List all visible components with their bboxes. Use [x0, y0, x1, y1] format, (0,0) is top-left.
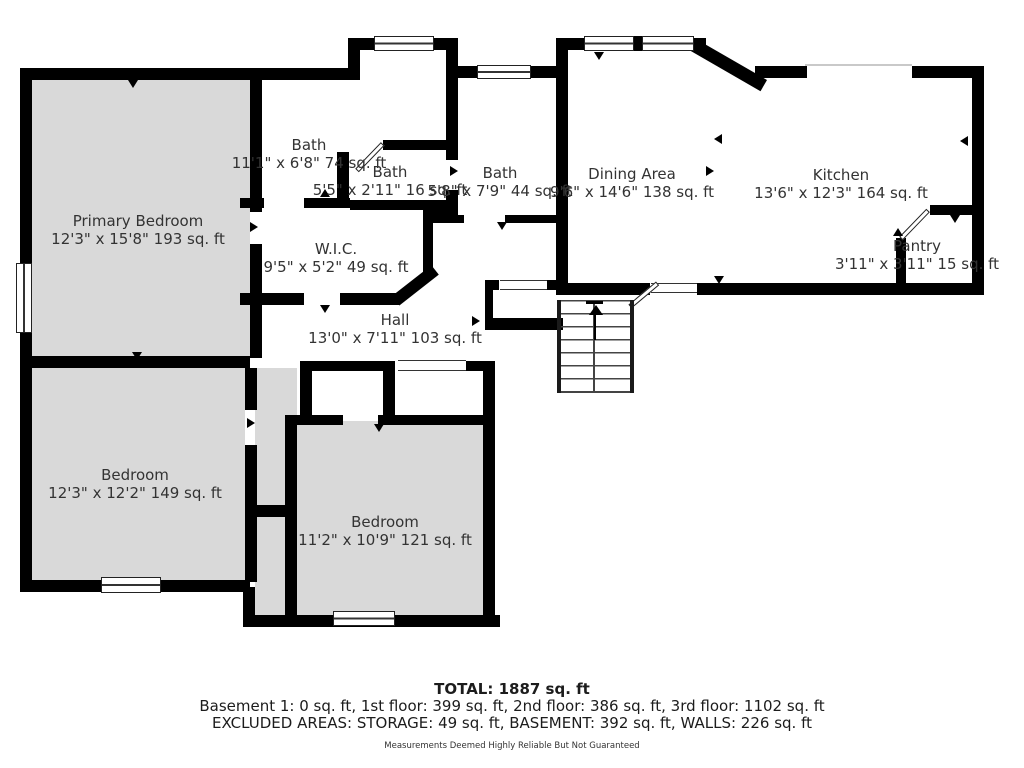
- window: [584, 36, 634, 51]
- wall: [245, 368, 257, 410]
- wall: [930, 205, 984, 215]
- room-name: Bath: [232, 136, 387, 154]
- opening: [805, 64, 912, 69]
- room-dims: 12'3" x 15'8" 193 sq. ft: [51, 230, 225, 248]
- wall: [300, 361, 312, 421]
- wall: [304, 198, 350, 208]
- room-name: Bedroom: [48, 466, 222, 484]
- wall: [340, 293, 400, 305]
- wall: [483, 361, 495, 627]
- window: [642, 36, 694, 51]
- wall: [697, 283, 984, 295]
- room-name: Bedroom: [298, 513, 472, 531]
- room-name: W.I.C.: [263, 240, 408, 258]
- window: [477, 65, 531, 79]
- summary-footer: TOTAL: 1887 sq. ft Basement 1: 0 sq. ft,…: [0, 681, 1024, 751]
- wall: [485, 318, 563, 330]
- door-marker: [250, 222, 258, 232]
- wall: [383, 140, 458, 150]
- wall: [505, 215, 567, 223]
- disclaimer: Measurements Deemed Highly Reliable But …: [0, 741, 1024, 751]
- wall: [250, 198, 262, 212]
- door-marker: [950, 215, 960, 223]
- door-marker: [374, 424, 384, 432]
- stair-rail: [630, 300, 634, 393]
- wall: [285, 421, 297, 617]
- door-marker: [22, 214, 30, 224]
- room-dims: 11'2" x 10'9" 121 sq. ft: [298, 531, 472, 549]
- room-name: Kitchen: [754, 166, 928, 184]
- wall: [383, 361, 395, 421]
- room-label-bedroom-bottom: Bedroom 11'2" x 10'9" 121 sq. ft: [298, 513, 472, 549]
- wall: [300, 361, 395, 371]
- door-leaf: [899, 209, 930, 241]
- wall: [466, 361, 495, 371]
- room-label-pantry: Pantry 3'11" x 3'11" 15 sq. ft: [835, 237, 999, 273]
- window: [398, 360, 466, 371]
- room-label-primary-bedroom: Primary Bedroom 12'3" x 15'8" 193 sq. ft: [51, 212, 225, 248]
- room-label-dining: Dining Area 9'6" x 14'6" 138 sq. ft: [550, 165, 714, 201]
- wall: [446, 215, 464, 223]
- room-name: Hall: [308, 311, 482, 329]
- room-label-wic: W.I.C. 9'5" x 5'2" 49 sq. ft: [263, 240, 408, 276]
- wall: [458, 66, 478, 78]
- wall: [563, 283, 650, 295]
- door-marker: [594, 52, 604, 60]
- room-label-hall: Hall 13'0" x 7'11" 103 sq. ft: [308, 311, 482, 347]
- window: [101, 577, 161, 593]
- wall: [378, 415, 483, 425]
- window: [333, 611, 395, 626]
- door-marker: [960, 136, 968, 146]
- room-name: Pantry: [835, 237, 999, 255]
- stairs-up-arrow: [589, 305, 603, 315]
- door-marker: [128, 80, 138, 88]
- wall: [634, 36, 642, 51]
- stairs-up-arrow: [594, 313, 596, 340]
- door-marker: [893, 228, 903, 236]
- room-dims: 13'0" x 7'11" 103 sq. ft: [308, 329, 482, 347]
- wall: [547, 280, 563, 290]
- room-dims: 13'6" x 12'3" 164 sq. ft: [754, 184, 928, 202]
- floor-plan: Primary Bedroom 12'3" x 15'8" 193 sq. ft…: [0, 0, 1024, 768]
- wall: [20, 68, 350, 80]
- room-dims: 9'6" x 14'6" 138 sq. ft: [550, 183, 714, 201]
- door-marker: [714, 134, 722, 144]
- stairs-up-arrow: [586, 301, 603, 304]
- wall: [531, 66, 556, 78]
- floor-areas: Basement 1: 0 sq. ft, 1st floor: 399 sq.…: [0, 698, 1024, 715]
- room-label-kitchen: Kitchen 13'6" x 12'3" 164 sq. ft: [754, 166, 928, 202]
- wall: [755, 66, 807, 78]
- door-marker: [247, 418, 255, 428]
- room-dims: 12'3" x 12'2" 149 sq. ft: [48, 484, 222, 502]
- excluded-areas: EXCLUDED AREAS: STORAGE: 49 sq. ft, BASE…: [0, 715, 1024, 732]
- door-marker: [22, 464, 30, 474]
- window: [16, 263, 32, 333]
- opening: [500, 280, 547, 290]
- room-name: Dining Area: [550, 165, 714, 183]
- wall: [285, 415, 343, 425]
- wall: [240, 293, 304, 305]
- room-dims: 9'5" x 5'2" 49 sq. ft: [263, 258, 408, 276]
- room-name: Primary Bedroom: [51, 212, 225, 230]
- room-label-bedroom-left: Bedroom 12'3" x 12'2" 149 sq. ft: [48, 466, 222, 502]
- room-dims: 3'11" x 3'11" 15 sq. ft: [835, 255, 999, 273]
- total-area: TOTAL: 1887 sq. ft: [0, 681, 1024, 698]
- door-marker: [714, 276, 724, 284]
- door-marker: [497, 222, 507, 230]
- door-marker: [132, 359, 142, 367]
- window: [374, 36, 434, 51]
